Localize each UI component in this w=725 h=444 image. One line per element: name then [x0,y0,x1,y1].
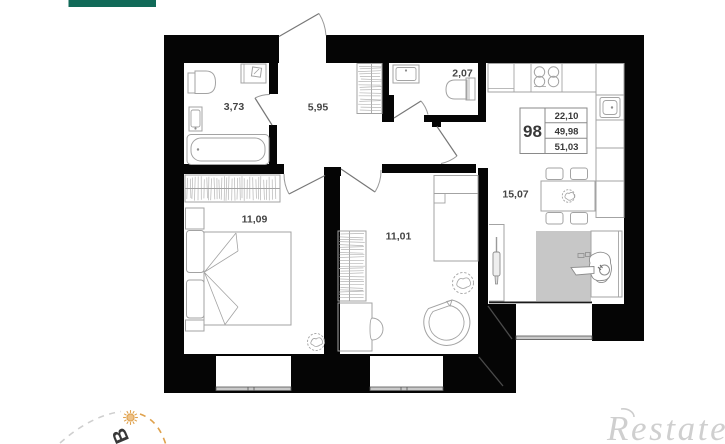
svg-text:98: 98 [523,122,542,141]
svg-text:Restate: Restate [606,409,725,444]
svg-text:51,03: 51,03 [555,142,579,153]
svg-text:5,95: 5,95 [308,102,329,114]
svg-text:15,07: 15,07 [502,189,528,201]
svg-text:2,07: 2,07 [452,68,473,80]
svg-text:11,01: 11,01 [386,231,412,243]
svg-text:3,73: 3,73 [224,101,245,113]
svg-text:11,09: 11,09 [242,214,268,226]
svg-text:22,10: 22,10 [555,111,579,122]
svg-text:49,98: 49,98 [555,126,579,137]
